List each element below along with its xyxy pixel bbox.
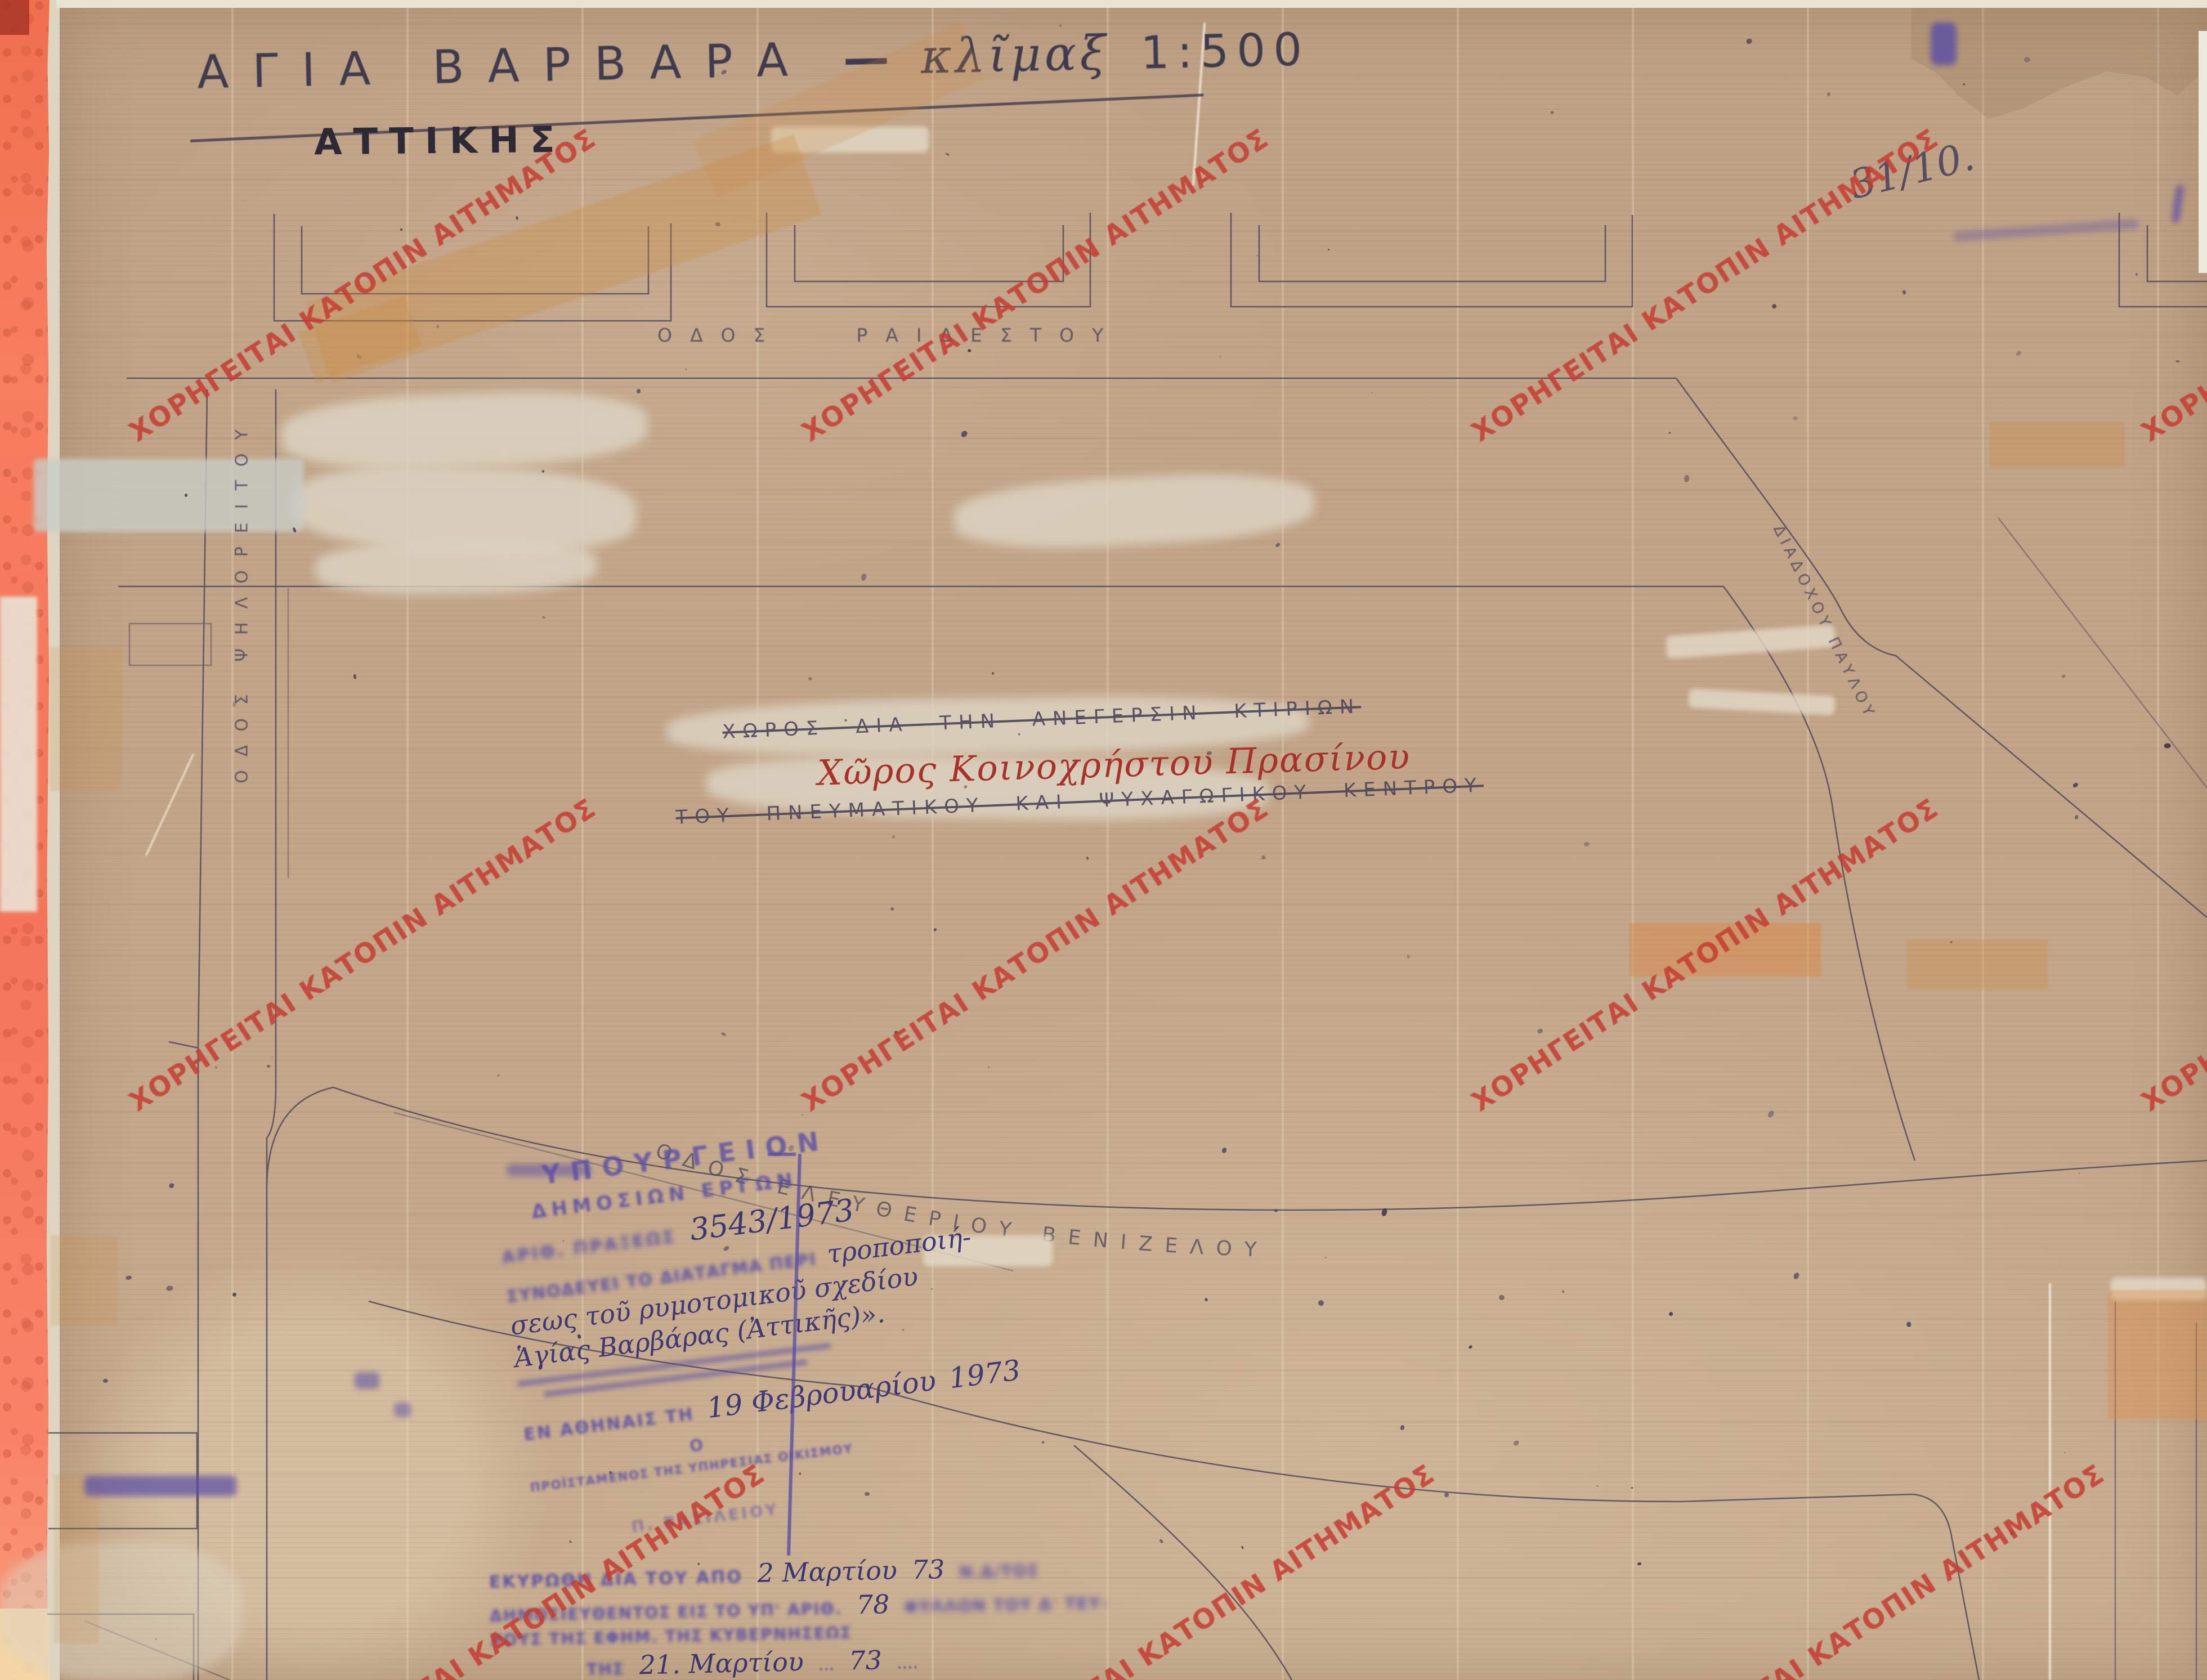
ratification-date1: 2 Μαρτίου xyxy=(757,1555,897,1588)
ink-speck xyxy=(1637,1562,1642,1565)
pale-zone-bottom-left xyxy=(0,1542,242,1680)
ink-speck xyxy=(496,1074,499,1077)
ink-speck xyxy=(400,229,402,231)
ink-smear xyxy=(84,1476,236,1496)
ratification-year2: 73 xyxy=(849,1645,883,1675)
dotted-fill: .... xyxy=(897,1653,919,1673)
block-outline-inner xyxy=(1259,225,1605,281)
ink-blot xyxy=(1931,23,1957,65)
grey-tape-band xyxy=(34,459,304,532)
plot-diagonal-east xyxy=(1998,518,2207,788)
ratification-year1: 73 xyxy=(911,1554,945,1585)
ink-smear xyxy=(394,1403,411,1417)
ratification-date2: 21. Μαρτίου xyxy=(639,1646,804,1680)
ministry-stamp: ΥΠΟΥΡΓΕΙΟΝ ΔΗΜΟΣΙΩΝ ΕΡΓΩΝ ΑΡΙΘ. ΠΡΑΞΕΩΣ … xyxy=(491,1121,906,1548)
ratification-line4: ΤΗΣ xyxy=(587,1660,625,1679)
ink-smear xyxy=(355,1372,379,1389)
ink-speck xyxy=(902,1328,905,1332)
stamp-margin-rule-hook xyxy=(768,1153,796,1156)
street-label-west: ΟΔΟΣ ΨΗΛΟΡΕΙΤΟΥ xyxy=(232,380,252,819)
tape-strip xyxy=(2108,1290,2207,1419)
small-plot-box xyxy=(129,624,211,665)
dotted-fill: ... xyxy=(818,1655,834,1675)
tape-strip xyxy=(1990,422,2125,467)
ink-speck xyxy=(931,1288,933,1289)
paper-crack xyxy=(2049,1283,2051,1680)
title-scale-value: 1:500 xyxy=(1140,23,1310,79)
street-label-north-prefix: ΟΔΟΣ xyxy=(657,324,783,346)
ink-speck xyxy=(637,388,641,393)
ratification-line2-tail: ΦΥΛΛΟΝ ΤΟΥ Δ' ΤΕΥ- xyxy=(904,1594,1109,1617)
scanned-plan-sheet: ΟΔΟΣ ΕΛΕΥΘΕΡΙΟΥ ΒΕΝΙΖΕΛΟΥ ΑΓΙΑ ΒΑΡΒΑΡΑ —… xyxy=(0,0,2207,1680)
ink-speck xyxy=(2135,273,2138,276)
ink-speck xyxy=(266,1065,270,1068)
gazette-issue-number: 78 xyxy=(856,1589,890,1620)
block-outline xyxy=(1231,213,1632,307)
ink-speck xyxy=(1371,392,1373,393)
block-outline-partial-inner xyxy=(2147,225,2207,281)
street-label-north: ΟΔΟΣ ΡΑΙΔΕΣΤΟΥ xyxy=(657,324,1121,346)
stamp-date-label: ΕΝ ΑΘΗΝΑΙΣ ΤΗ xyxy=(523,1404,696,1445)
tape-strip xyxy=(1907,940,2048,989)
title-region: ΑΤΤΙΚΗΣ xyxy=(314,119,566,164)
ink-speck xyxy=(968,349,971,352)
block-outline-inner xyxy=(795,225,1063,281)
ratification-line1-tail: Ν.Δ/ΤΟΣ xyxy=(959,1562,1040,1582)
tape-strip xyxy=(50,647,122,791)
tape-strip xyxy=(51,1235,117,1325)
tape-strip xyxy=(54,1475,99,1643)
